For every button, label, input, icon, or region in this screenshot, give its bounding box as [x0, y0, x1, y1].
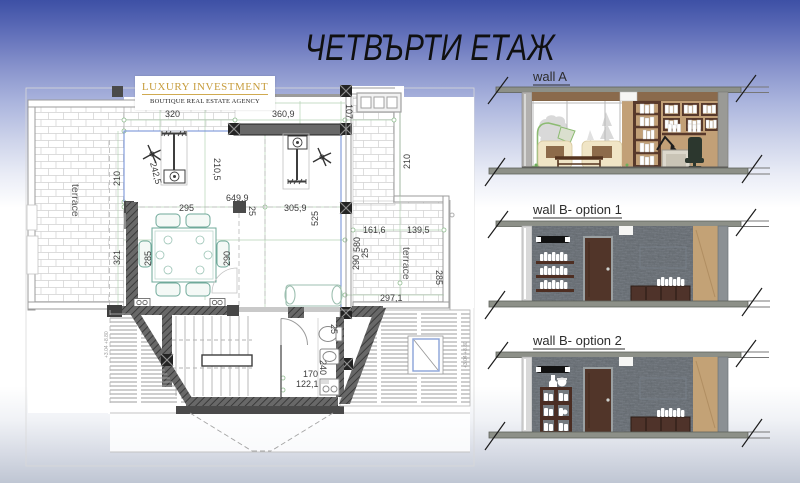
svg-text:139,5: 139,5	[407, 225, 430, 235]
svg-text:25: 25	[360, 248, 370, 258]
svg-text:161,6: 161,6	[363, 225, 386, 235]
svg-text:+3.04 +8.80: +3.04 +8.80	[463, 341, 469, 368]
svg-text:210: 210	[112, 171, 122, 186]
svg-text:25: 25	[329, 324, 339, 334]
svg-text:wall B- option 1: wall B- option 1	[532, 202, 622, 217]
svg-text:107: 107	[344, 104, 354, 119]
svg-text:320: 320	[165, 109, 180, 119]
svg-text:terrace: terrace	[400, 247, 412, 280]
svg-text:210: 210	[402, 154, 412, 169]
svg-text:290: 290	[222, 251, 232, 266]
svg-text:210,5: 210,5	[212, 158, 222, 181]
svg-text:290: 290	[351, 255, 361, 270]
svg-text:285: 285	[143, 251, 153, 266]
svg-text:240: 240	[318, 360, 328, 375]
svg-text:649,9: 649,9	[226, 193, 249, 203]
svg-text:terrace: terrace	[69, 184, 81, 217]
svg-text:170: 170	[303, 369, 318, 379]
svg-text:360,9: 360,9	[272, 109, 295, 119]
svg-text:295: 295	[179, 203, 194, 213]
svg-text:wall A: wall A	[532, 69, 567, 84]
svg-text:+3.04 +8.80: +3.04 +8.80	[104, 331, 110, 358]
svg-text:285: 285	[434, 270, 444, 285]
svg-text:525: 525	[310, 211, 320, 226]
svg-text:25: 25	[247, 206, 257, 216]
svg-text:wall B- option 2: wall B- option 2	[532, 333, 622, 348]
svg-text:305,9: 305,9	[284, 203, 307, 213]
svg-text:321: 321	[112, 250, 122, 265]
svg-text:297,1: 297,1	[380, 293, 403, 303]
svg-text:122,1: 122,1	[296, 379, 319, 389]
